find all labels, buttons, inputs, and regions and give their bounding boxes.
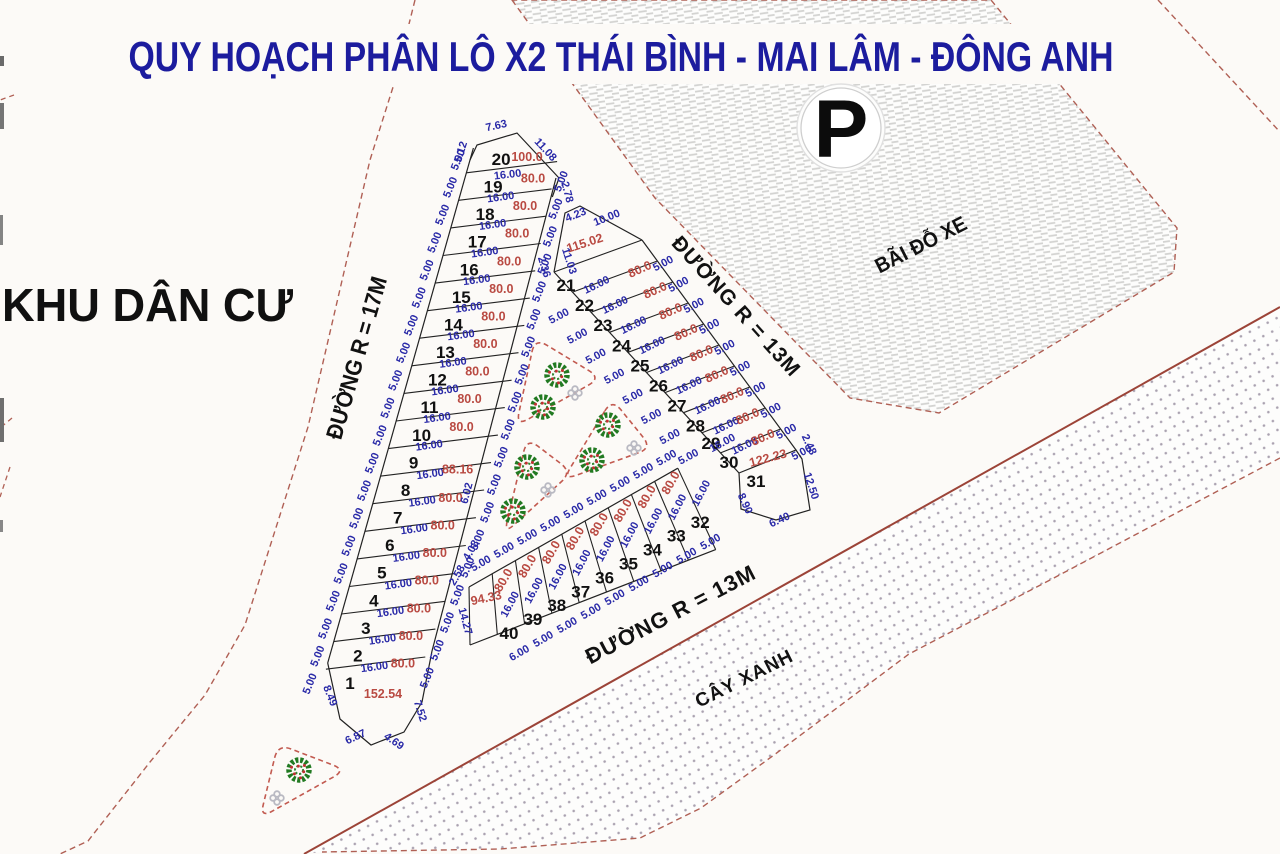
svg-text:37: 37 xyxy=(571,582,590,601)
svg-text:100.0: 100.0 xyxy=(511,150,542,164)
svg-text:34: 34 xyxy=(643,541,662,560)
svg-text:80.0: 80.0 xyxy=(407,601,431,615)
svg-text:80.0: 80.0 xyxy=(449,420,473,434)
svg-text:40: 40 xyxy=(500,624,519,643)
svg-text:35: 35 xyxy=(619,555,638,574)
svg-text:80.0: 80.0 xyxy=(465,365,489,379)
svg-text:80.0: 80.0 xyxy=(521,172,545,186)
svg-text:80.0: 80.0 xyxy=(505,227,529,241)
svg-text:26: 26 xyxy=(649,377,668,396)
svg-text:38: 38 xyxy=(547,596,566,615)
svg-text:20: 20 xyxy=(492,150,511,169)
svg-text:22: 22 xyxy=(575,296,594,315)
svg-text:80.0: 80.0 xyxy=(415,574,439,588)
svg-text:P: P xyxy=(814,84,869,175)
svg-text:31: 31 xyxy=(747,472,766,491)
svg-text:80.0: 80.0 xyxy=(391,656,415,670)
svg-text:30: 30 xyxy=(720,453,739,472)
svg-text:80.0: 80.0 xyxy=(399,629,423,643)
svg-text:1: 1 xyxy=(345,674,354,693)
svg-text:QUY HOẠCH PHÂN LÔ X2 THÁI BÌNH: QUY HOẠCH PHÂN LÔ X2 THÁI BÌNH - MAI LÂM… xyxy=(129,32,1114,80)
svg-text:KHU DÂN CƯ: KHU DÂN CƯ xyxy=(2,279,294,331)
svg-text:80.0: 80.0 xyxy=(423,546,447,560)
svg-text:152.54: 152.54 xyxy=(364,687,402,701)
svg-text:80.0: 80.0 xyxy=(489,282,513,296)
svg-text:80.0: 80.0 xyxy=(457,392,481,406)
svg-text:80.0: 80.0 xyxy=(431,519,455,533)
svg-text:23: 23 xyxy=(594,316,613,335)
svg-text:80.0: 80.0 xyxy=(497,254,521,268)
svg-text:80.0: 80.0 xyxy=(513,199,537,213)
svg-text:21: 21 xyxy=(557,276,576,295)
svg-text:36: 36 xyxy=(595,568,614,587)
svg-text:39: 39 xyxy=(523,610,542,629)
svg-text:27: 27 xyxy=(668,397,687,416)
svg-text:24: 24 xyxy=(612,336,631,355)
svg-text:80.0: 80.0 xyxy=(473,337,497,351)
svg-text:88.16: 88.16 xyxy=(442,462,473,476)
svg-text:32: 32 xyxy=(691,513,710,532)
svg-text:25: 25 xyxy=(631,356,650,375)
svg-text:80.0: 80.0 xyxy=(481,310,505,324)
svg-text:33: 33 xyxy=(667,527,686,546)
